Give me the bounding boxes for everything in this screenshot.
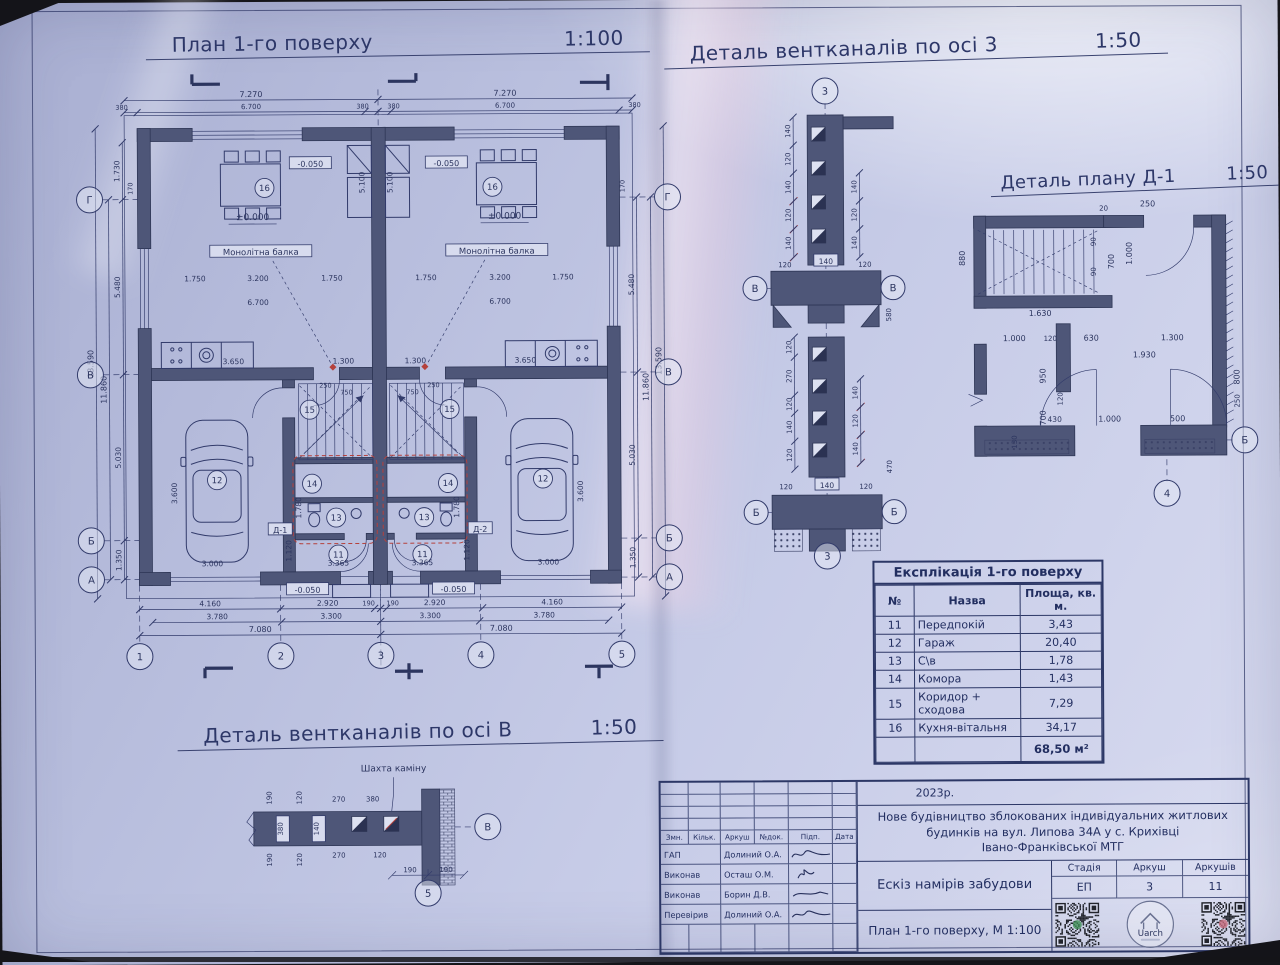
dim-label: 140: [785, 237, 793, 250]
dim-label: 500: [1170, 414, 1185, 423]
table-cell: 1,78: [1020, 651, 1101, 669]
dim-label: 1.120: [284, 540, 293, 562]
dim-label: 3.365: [328, 559, 350, 568]
titleblock-cell: [721, 818, 755, 830]
table-cell: 20,40: [1020, 633, 1101, 651]
total-area: 68,50 м²: [1021, 736, 1102, 761]
titleblock-cell: [661, 925, 689, 953]
titleblock-cell: Долиний О.А.: [721, 844, 789, 864]
dim-label: 750: [340, 389, 352, 397]
axis-bubble-label: В: [484, 822, 491, 833]
dim-label: 120: [859, 483, 872, 491]
titleblock-cell: [789, 884, 833, 904]
title-d1-scale: 1:50: [1226, 162, 1269, 185]
axis-bubble-label: 2: [278, 651, 284, 662]
axis-bubble-label: 4: [478, 650, 484, 661]
dim-label: 120: [1057, 392, 1065, 405]
axis-bubble-label: В: [890, 283, 897, 294]
table-cell: Комора: [914, 670, 1020, 689]
room-number-label: 15: [444, 405, 455, 415]
dim-label: 190: [439, 866, 452, 874]
dim-label: 5.480: [627, 274, 636, 296]
dim-label: 1.300: [405, 356, 427, 365]
dim-label: 1.750: [415, 273, 437, 282]
detail-d1-drawing: 2025088090907001.0001.6301.0001206301.30…: [944, 193, 1266, 515]
titleblock-cell: Дата: [833, 830, 857, 844]
titleblock-cell: Долиний О.А.: [721, 904, 789, 924]
logo-area: Uarch: [1052, 898, 1248, 951]
dim-label: 5.030: [114, 447, 123, 469]
year-cell: 2023р.: [858, 780, 1248, 806]
dim-label: 3.200: [489, 273, 511, 282]
dim-label: 6.700: [247, 298, 269, 307]
dim-label: 4.160: [541, 597, 563, 606]
table-header-row: № Назва Площа, кв. м.: [875, 584, 1101, 616]
dim-label: 3.300: [419, 611, 441, 620]
stage-header: Аркушів: [1183, 860, 1248, 876]
signature-grid: Змн.Кільк.Аркуш№док.Підп.ДатаГАПДолиний …: [661, 782, 859, 953]
titleblock-cell: [833, 782, 857, 794]
titleblock-cell: [755, 924, 789, 952]
table-cell: 12: [875, 634, 914, 652]
dim-label: 120: [1044, 335, 1057, 343]
dim-label: 250: [1234, 394, 1242, 407]
col-header-area: Площа, кв. м.: [1020, 584, 1101, 615]
dim-label: 3.365: [412, 558, 434, 567]
titleblock-cell: Виконав: [661, 885, 721, 905]
table-cell: Передпокій: [914, 616, 1020, 635]
dim-label: 90: [1090, 237, 1098, 246]
axis-bubble-label: А: [88, 575, 95, 586]
dim-label: 580: [885, 308, 893, 321]
titleblock-cell: [661, 819, 689, 831]
uarch-logo-icon: Uarch: [1125, 899, 1175, 949]
titleblock-cell: [789, 904, 833, 924]
room-number-label: 16: [487, 183, 498, 193]
dim-label: 140: [784, 125, 792, 138]
titleblock-cell: [689, 783, 721, 795]
dim-label: 3.000: [202, 559, 224, 568]
detail-ref-label: Д-1: [273, 526, 287, 535]
title-block: Змн.Кільк.Аркуш№док.Підп.ДатаГАПДолиний …: [659, 778, 1251, 955]
dim-label: 1.750: [184, 274, 206, 283]
d1-geometry: [968, 215, 1233, 482]
axis-bubble-label: Б: [753, 508, 760, 519]
axis-bubble-label: Б: [1241, 435, 1248, 446]
title-plan-text: План 1-го поверху: [172, 30, 373, 57]
entry-porch: [333, 584, 371, 597]
dim-label: 3.780: [206, 612, 228, 621]
titleblock-cell: [721, 794, 755, 806]
titleblock-cell: Перевірив: [661, 905, 721, 925]
dim-label: 380: [366, 795, 379, 803]
dim-label: 1.120: [462, 539, 471, 561]
axis-bubble-label: В: [752, 284, 759, 295]
axis-bubble-label: А: [666, 572, 673, 583]
titleblock-cell: [661, 783, 689, 795]
table-cell: 7,29: [1021, 687, 1102, 718]
title-plan-scale: 1:100: [564, 26, 624, 51]
titleblock-cell: Кільк.: [689, 831, 721, 845]
table-row: 13С\в1,78: [875, 651, 1101, 670]
dim-label: 3.600: [170, 482, 179, 504]
table-row: 16Кухня-вітальня34,17: [876, 718, 1102, 737]
dim-label: 1.750: [321, 274, 343, 283]
dim-label: 4.160: [199, 599, 221, 608]
titleblock-cell: [833, 844, 857, 864]
titleblock-cell: [789, 782, 833, 794]
axis-bubble-label: Б: [666, 533, 673, 544]
titleblock-cell: [755, 794, 789, 806]
dim-label: 190: [403, 866, 416, 874]
room-number-label: 13: [331, 514, 342, 524]
axis-bubble-label: Б: [88, 536, 95, 547]
stage-header: Аркуш: [1117, 860, 1182, 876]
entry-porch: [391, 584, 429, 597]
level-mark: ±0.000: [488, 212, 522, 222]
room-number-label: 16: [259, 184, 270, 194]
dim-label: 3.200: [247, 274, 269, 283]
axis-bubble-label: Г: [86, 195, 92, 206]
dim-label: 380: [115, 104, 127, 112]
axis-bubble-label: 3: [378, 651, 384, 662]
dim-label: 250: [427, 381, 439, 389]
titleblock-cell: Аркуш: [721, 830, 755, 844]
dim-label: 170: [126, 182, 134, 194]
stage-value: 3: [1117, 876, 1182, 898]
dim-label: 11.860: [641, 373, 650, 401]
dim-label: 2.920: [424, 598, 446, 607]
table-row: 14Комора1,43: [875, 669, 1101, 688]
dim-label: 800: [1232, 369, 1241, 384]
titleblock-cell: [833, 818, 857, 830]
dim-label: 190: [362, 599, 374, 607]
titleblock-cell: [789, 924, 833, 952]
dim-label: 120: [851, 208, 859, 221]
dim-label: 120: [858, 261, 871, 269]
table-cell: 14: [875, 670, 914, 688]
titleblock-cell: [721, 806, 755, 818]
titleblock-cell: [789, 818, 833, 830]
titleblock-cell: [833, 884, 857, 904]
titleblock-cell: Виконав: [661, 865, 721, 885]
stage-value: 11: [1183, 876, 1248, 898]
dim-label: 1.000: [1125, 242, 1134, 265]
dim-label: 140: [852, 386, 860, 399]
axis-bubble-label: 5: [619, 650, 625, 661]
table-total-row: 68,50 м²: [876, 736, 1102, 762]
dim-label: 1.750: [552, 272, 574, 281]
dim-label: 1.350: [628, 547, 637, 569]
qr-code-icon: [1055, 903, 1099, 947]
titleblock-cell: [833, 806, 857, 818]
dim-label: 7.270: [493, 89, 516, 98]
dim-label: 3.650: [515, 356, 537, 365]
titleblock-cell: [721, 924, 755, 952]
titleblock-cell: [689, 795, 721, 807]
project-name: Нове будівництво зблокованих індивідуаль…: [858, 804, 1248, 862]
stage-table: СтадіяАркушАркушівЕП311: [1052, 860, 1248, 899]
dim-label: 140: [850, 180, 858, 193]
table-cell: 34,17: [1021, 718, 1102, 736]
table-row: 12Гараж20,40: [875, 633, 1101, 652]
dim-label: 880: [958, 251, 967, 266]
dim-label: 270: [332, 852, 345, 860]
table-cell: 11: [875, 616, 914, 634]
axis-bubble-label: Б: [891, 507, 898, 518]
dim-label: 20: [1099, 205, 1108, 213]
titleblock-cell: [755, 782, 789, 794]
dim-label: 140: [851, 236, 859, 249]
table-cell: 15: [876, 688, 915, 719]
signature-icon: [790, 886, 832, 901]
titleblock-cell: [689, 925, 721, 953]
dim-label: 7.080: [249, 625, 272, 634]
titleblock-cell: [833, 864, 857, 884]
titleblock-cell: Борин Д.В.: [721, 884, 789, 904]
room-number-label: 14: [443, 479, 454, 489]
titleblock-cell: ГАП: [661, 845, 721, 865]
titleblock-cell: [789, 864, 833, 884]
dim-label: 120: [296, 853, 304, 866]
titleblock-cell: №док.: [755, 830, 789, 844]
project-line: Івано-Франківської МТГ: [858, 839, 1248, 857]
dim-label: 1.300: [333, 356, 355, 365]
dim-label: 120: [778, 261, 791, 269]
title-vent3-scale: 1:50: [1095, 27, 1142, 52]
dim-label: 1.730: [112, 160, 121, 182]
logo-text: Uarch: [1138, 929, 1163, 939]
room-number-label: 15: [304, 406, 315, 416]
dim-label: 140: [852, 442, 860, 455]
table-cell: С\в: [914, 652, 1020, 671]
titleblock-cell: [789, 844, 833, 864]
dim-label: 140: [819, 257, 834, 266]
dim-label: 250: [319, 382, 331, 390]
dim-label: 1.780: [294, 497, 303, 519]
titleblock-cell: [789, 806, 833, 818]
dim-label: 750: [406, 388, 418, 396]
dim-label: 5.030: [628, 444, 637, 466]
dim-label: 140: [786, 421, 794, 434]
stage-header: Стадія: [1052, 861, 1117, 877]
dim-label: 120: [296, 791, 304, 804]
titleblock-cell: Підп.: [789, 830, 833, 844]
vent-detail-axisb: Шахта каміну3801401901201901202703802701…: [225, 759, 526, 911]
table-cell: 16: [876, 719, 915, 737]
table-cell: Гараж: [914, 634, 1020, 653]
sheet-title: План 1-го поверху, М 1:100: [858, 909, 1051, 951]
explication-table: Експлікація 1-го поверху № Назва Площа, …: [872, 560, 1104, 765]
dim-label: 130: [1011, 435, 1019, 448]
detail-ref-label: Д-2: [473, 525, 487, 534]
dim-label: 120: [786, 449, 794, 462]
dim-label: 3.780: [533, 610, 555, 619]
dim-label: 2.920: [317, 599, 339, 608]
dim-label: 5.100: [385, 171, 394, 193]
dim-label: 120: [786, 398, 794, 411]
room-number-label: 14: [307, 480, 318, 490]
table-cell: Кухня-вітальня: [915, 719, 1021, 738]
dim-label: 170: [618, 180, 626, 192]
dim-label: 140: [784, 181, 792, 194]
dim-label: 7.080: [490, 624, 513, 633]
axis-bubble-label: 5: [425, 889, 431, 900]
dim-label: 380: [356, 102, 368, 110]
room-number-label: 12: [212, 476, 223, 486]
level-mark: -0.050: [295, 586, 321, 595]
dim-label: 1.780: [452, 496, 461, 518]
vent-detail-axis3: 1401201401201401401201401202701201401201…: [740, 74, 943, 575]
dim-label: 700: [1039, 410, 1048, 425]
dim-label: 6.700: [495, 102, 515, 110]
level-mark: ±0.000: [236, 213, 270, 223]
dim-label: 120: [852, 414, 860, 427]
signature-icon: [790, 866, 832, 881]
table-cell: 13: [875, 652, 914, 670]
dim-label: 7.270: [239, 90, 262, 99]
dim-label: 120: [784, 153, 792, 166]
dim-label: 3.650: [223, 357, 245, 366]
dim-label: 140: [820, 481, 835, 490]
logo-subtext-smudge: [1141, 939, 1160, 941]
dim-label: 3.600: [576, 480, 585, 502]
dim-label: 950: [1038, 368, 1047, 383]
titleblock-cell: [833, 924, 857, 952]
dim-label: 90: [1090, 267, 1098, 276]
dim-label: 470: [886, 460, 894, 473]
dim-label: 270: [332, 796, 345, 804]
dim-label: 120: [373, 851, 386, 859]
dim-label: 120: [779, 483, 792, 491]
axis-bubble-label: 3: [824, 552, 830, 563]
stage-value: ЕП: [1052, 877, 1117, 899]
titleblock-cell: [755, 806, 789, 818]
titleblock-cell: [721, 782, 755, 794]
titleblock-cell: [789, 794, 833, 806]
titleblock-cell: [755, 818, 789, 830]
document-title: Ескіз намірів забудови: [858, 861, 1051, 911]
titleblock-cell: [833, 904, 857, 924]
dim-label: 1.350: [114, 549, 123, 571]
level-mark: -0.050: [297, 160, 323, 169]
dim-label: 380: [277, 822, 285, 835]
floor-plan-drawing: 7.2707.2703806.7003803806.7003801.7305.4…: [42, 66, 735, 702]
dim-label: 5.480: [113, 276, 122, 298]
dim-label: 190: [266, 791, 274, 804]
dim-label: 3.300: [320, 612, 342, 621]
table-cell: 1,43: [1020, 669, 1101, 687]
dim-label: 1.300: [1161, 333, 1184, 342]
room-number-label: 13: [419, 513, 430, 523]
col-header-name: Назва: [914, 585, 1020, 617]
titleblock-cell: [833, 794, 857, 806]
titleblock-cell: [689, 807, 721, 819]
table-row: 11Передпокій3,43: [875, 615, 1101, 634]
dim-label: 380: [387, 102, 399, 110]
dim-label: 1.630: [1029, 309, 1052, 318]
dim-label: 700: [1107, 254, 1116, 269]
titleblock-cell: Осташ О.М.: [721, 864, 789, 884]
titleblock-cell: [661, 807, 689, 819]
titleblock-cell: Змн.: [661, 831, 689, 845]
table-cell: Коридор + сходова: [915, 688, 1021, 720]
signature-icon: [790, 906, 832, 921]
beam-label: Монолітна балка: [459, 247, 535, 257]
axis-bubble-label: 3: [822, 87, 828, 98]
axis-bubble-label: В: [665, 367, 672, 378]
explication-title: Експлікація 1-го поверху: [874, 562, 1101, 585]
dim-label: 6.700: [489, 297, 511, 306]
dim-label: 190: [266, 853, 274, 866]
axis-bubble-label: 4: [1164, 489, 1170, 500]
dim-label: 120: [785, 209, 793, 222]
dim-label: 270: [785, 370, 793, 383]
title-ventb-text: Деталь вентканалів по осі В: [203, 717, 513, 747]
dim-label: 190: [386, 599, 398, 607]
axis-bubble-label: Г: [664, 192, 670, 203]
signature-icon: [789, 846, 831, 861]
level-mark: -0.050: [441, 585, 467, 594]
shaft-label: Шахта каміну: [361, 764, 427, 774]
titleblock-cell: [689, 819, 721, 831]
dim-label: 140: [313, 822, 321, 835]
dim-label: 250: [1140, 199, 1155, 208]
title-ventb-scale: 1:50: [590, 715, 637, 740]
titleblock-cell: [661, 795, 689, 807]
dim-label: 1.000: [1003, 334, 1026, 343]
plan-geometry: [102, 72, 657, 681]
table-row: 15Коридор + сходова7,29: [876, 687, 1102, 719]
dim-label: 5.100: [357, 171, 366, 193]
table-cell: 3,43: [1020, 615, 1101, 633]
dim-label: 6.700: [241, 103, 261, 111]
qr-code-icon: [1201, 902, 1245, 946]
level-mark: -0.050: [433, 159, 459, 168]
dim-label: 120: [785, 341, 793, 354]
dim-label: 1.000: [1098, 414, 1121, 423]
axis-bubble-label: 1: [137, 652, 143, 663]
dim-label: 380: [628, 101, 640, 109]
blueprint-paper: План 1-го поверху 1:100 Деталь вентканал…: [0, 0, 1280, 965]
beam-label: Монолітна балка: [223, 248, 299, 258]
col-header-number: №: [875, 585, 914, 616]
room-number-label: 12: [538, 474, 549, 484]
dim-label: 430: [1047, 415, 1062, 424]
dim-label: 1.930: [1133, 350, 1156, 359]
dim-label: 630: [1084, 334, 1099, 343]
dim-label: 3.000: [538, 557, 560, 566]
axis-bubble-label: В: [87, 370, 94, 381]
